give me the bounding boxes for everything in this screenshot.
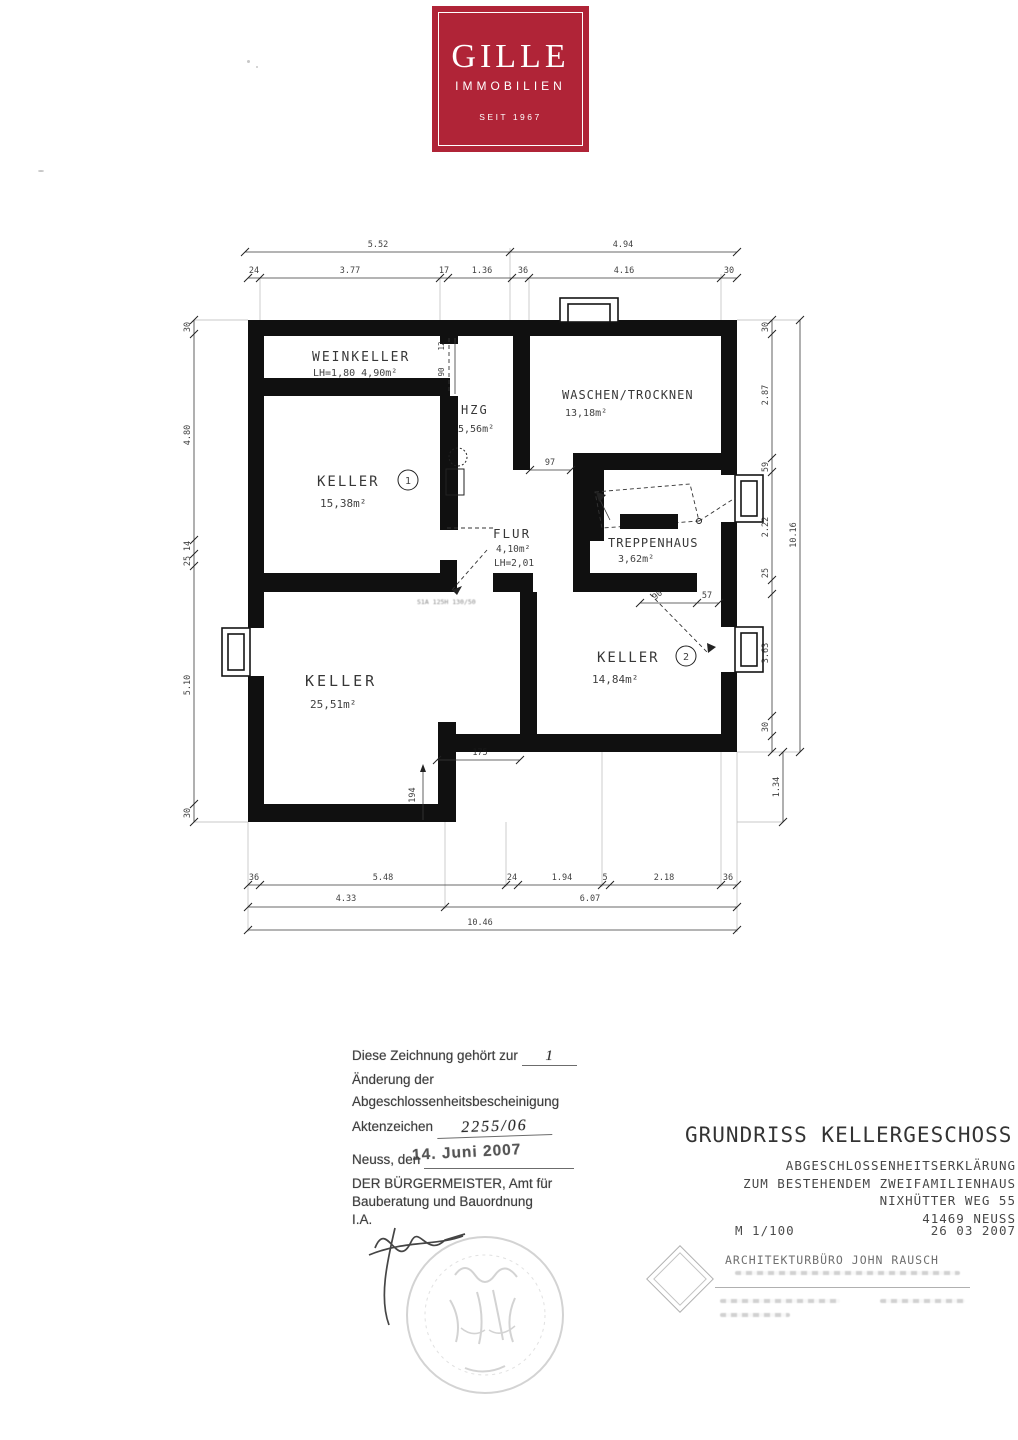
dim-bottom: 24 (507, 873, 517, 883)
logo-name: GILLE (451, 38, 569, 76)
dim-left: 30 (183, 322, 193, 332)
dim-top: 30 (724, 266, 734, 276)
dim-right-total: 10.16 (789, 522, 799, 548)
illegible-print-line (880, 1299, 965, 1303)
dim-bottom: 5.48 (373, 873, 393, 883)
official-round-stamp (407, 1237, 563, 1393)
note-line1-label: Diese Zeichnung gehört zur (352, 1048, 518, 1063)
note-line5-label: Neuss, den (352, 1152, 420, 1167)
illegible-print-line (735, 1271, 960, 1275)
architect-name: ARCHITEKTURBÜRO JOHN RAUSCH (725, 1253, 939, 1267)
dim-left: 25 (183, 556, 193, 566)
room-waschen: WASCHEN/TROCKNEN (562, 388, 694, 402)
title-block-rule (715, 1287, 970, 1288)
window-right-lower-inner (741, 633, 757, 666)
dim-step-width: 175 (472, 748, 487, 758)
drawing-subtitle: ABGESCHLOSSENHEITSERKLÄRUNG ZUM BESTEHEN… (743, 1157, 1016, 1227)
room-hzg: HZG (461, 403, 489, 417)
dim-left: 5.10 (183, 675, 193, 695)
staircase (595, 484, 735, 529)
title-block: GRUNDRISS KELLERGESCHOSS ABGESCHLOSSENHE… (640, 1115, 1018, 1345)
dim-right: 2.87 (761, 385, 771, 405)
dim-bottom: 2.18 (654, 873, 674, 883)
gille-logo: GILLE IMMOBILIEN SEIT 1967 (432, 6, 589, 152)
dim-right: 59 (761, 462, 771, 472)
dim-bottom: 36 (249, 873, 259, 883)
note-line3: Abgeschlossenheitsbescheinigung (352, 1094, 559, 1109)
windows (222, 298, 763, 676)
window-left-inner (228, 634, 244, 670)
scanned-floorplan-page: GILLE IMMOBILIEN SEIT 1967 (0, 0, 1018, 1440)
room-waschen-area: 13,18m² (565, 408, 607, 419)
dim-top: 4.16 (614, 266, 634, 276)
floorplan-drawing: 5.52 4.94 24 3.77 17 1.36 36 4.16 30 36 … (150, 230, 870, 990)
dim-right: 25 (761, 568, 771, 578)
dim-bottom: 5 (602, 873, 607, 883)
dim-right: 2.22 (761, 517, 771, 537)
room-hzg-area: 5,56m² (458, 424, 494, 435)
note-line1-value: 1 (522, 1048, 577, 1066)
room-treppenhaus-area: 3,62m² (618, 554, 654, 565)
dim-hzg-door: 90 (437, 367, 446, 377)
dim-top: 17 (439, 266, 449, 276)
dim-waschen-door: 97 (545, 458, 555, 468)
room-labels: WEINKELLER LH=1,80 4,90m² HZG 5,56m² WAS… (305, 350, 698, 711)
room-keller1: KELLER (317, 474, 380, 490)
dim-right: 30 (761, 722, 771, 732)
room-weinkeller-detail: LH=1,80 4,90m² (313, 368, 397, 379)
note-line4-value: 2255/06 (437, 1116, 553, 1139)
dim-top: 1.36 (472, 266, 492, 276)
illegible-print-line (720, 1313, 790, 1317)
dim-top: 36 (518, 266, 528, 276)
room-weinkeller: WEINKELLER (312, 350, 410, 365)
dim-right-lower: 1.34 (772, 777, 782, 797)
flur-leader-2 (452, 550, 487, 590)
dim-bottom: 4.33 (336, 894, 356, 904)
room-keller1-area: 15,38m² (320, 497, 366, 510)
dim-194-arrow (420, 764, 426, 772)
logo-since: SEIT 1967 (479, 112, 542, 122)
room-flur: FLUR (493, 526, 531, 541)
dim-top: 3.77 (340, 266, 360, 276)
room-keller2: KELLER (597, 650, 660, 666)
dim-left: 30 (183, 808, 193, 818)
room-treppenhaus: TREPPENHAUS (608, 536, 698, 550)
room-keller2-number: 2 (683, 652, 689, 663)
dim-bottom: 36 (723, 873, 733, 883)
signature-and-stamp (365, 1200, 615, 1435)
architect-logo (646, 1245, 714, 1313)
dim-step-height: 194 (408, 787, 418, 802)
dim-keller2-door: 57 (702, 591, 712, 601)
dim-top: 5.52 (368, 240, 388, 250)
dim-bottom-total: 10.46 (467, 918, 493, 928)
keller2-door-arrow (707, 643, 716, 653)
door-annotation: S1A 125H 130/50 (417, 598, 476, 606)
room-flur-area: 4,10m² (496, 544, 530, 555)
room-flur-detail: LH=2,01 (494, 558, 534, 569)
dim-right: 3.63 (761, 643, 771, 663)
dim-top: 24 (249, 266, 259, 276)
dim-bottom: 1.94 (552, 873, 572, 883)
logo-subtitle: IMMOBILIEN (455, 79, 566, 93)
scan-speck (256, 66, 258, 68)
dim-bottom: 6.07 (580, 894, 600, 904)
drawing-date: 26 03 2007 (931, 1223, 1016, 1238)
note-line4-label: Aktenzeichen (352, 1119, 433, 1134)
note-line6: DER BÜRGERMEISTER, Amt für (352, 1176, 552, 1191)
subtitle-line3: NIXHÜTTER WEG 55 (743, 1192, 1016, 1210)
drawing-title: GRUNDRISS KELLERGESCHOSS (685, 1123, 1012, 1147)
dim-hzg-door: 12 (437, 341, 446, 350)
note-line2: Änderung der (352, 1072, 434, 1087)
dim-left: 4.80 (183, 425, 193, 445)
drawing-scale: M 1/100 (735, 1223, 795, 1238)
window-right-upper-inner (741, 481, 757, 516)
room-keller1-number: 1 (405, 476, 411, 487)
dim-left: 14 (183, 541, 193, 551)
scan-speck (38, 170, 44, 172)
room-keller-gross: KELLER (305, 672, 377, 690)
subtitle-line1: ABGESCHLOSSENHEITSERKLÄRUNG (743, 1157, 1016, 1175)
room-keller2-area: 14,84m² (592, 673, 638, 686)
dim-top: 4.94 (613, 240, 633, 250)
dim-right: 30 (761, 322, 771, 332)
room-keller-gross-area: 25,51m² (310, 698, 356, 711)
illegible-print-line (720, 1299, 840, 1303)
window-top-inner (568, 304, 610, 322)
subtitle-line2: ZUM BESTEHENDEM ZWEIFAMILIENHAUS (743, 1175, 1016, 1193)
scan-speck (247, 60, 250, 63)
